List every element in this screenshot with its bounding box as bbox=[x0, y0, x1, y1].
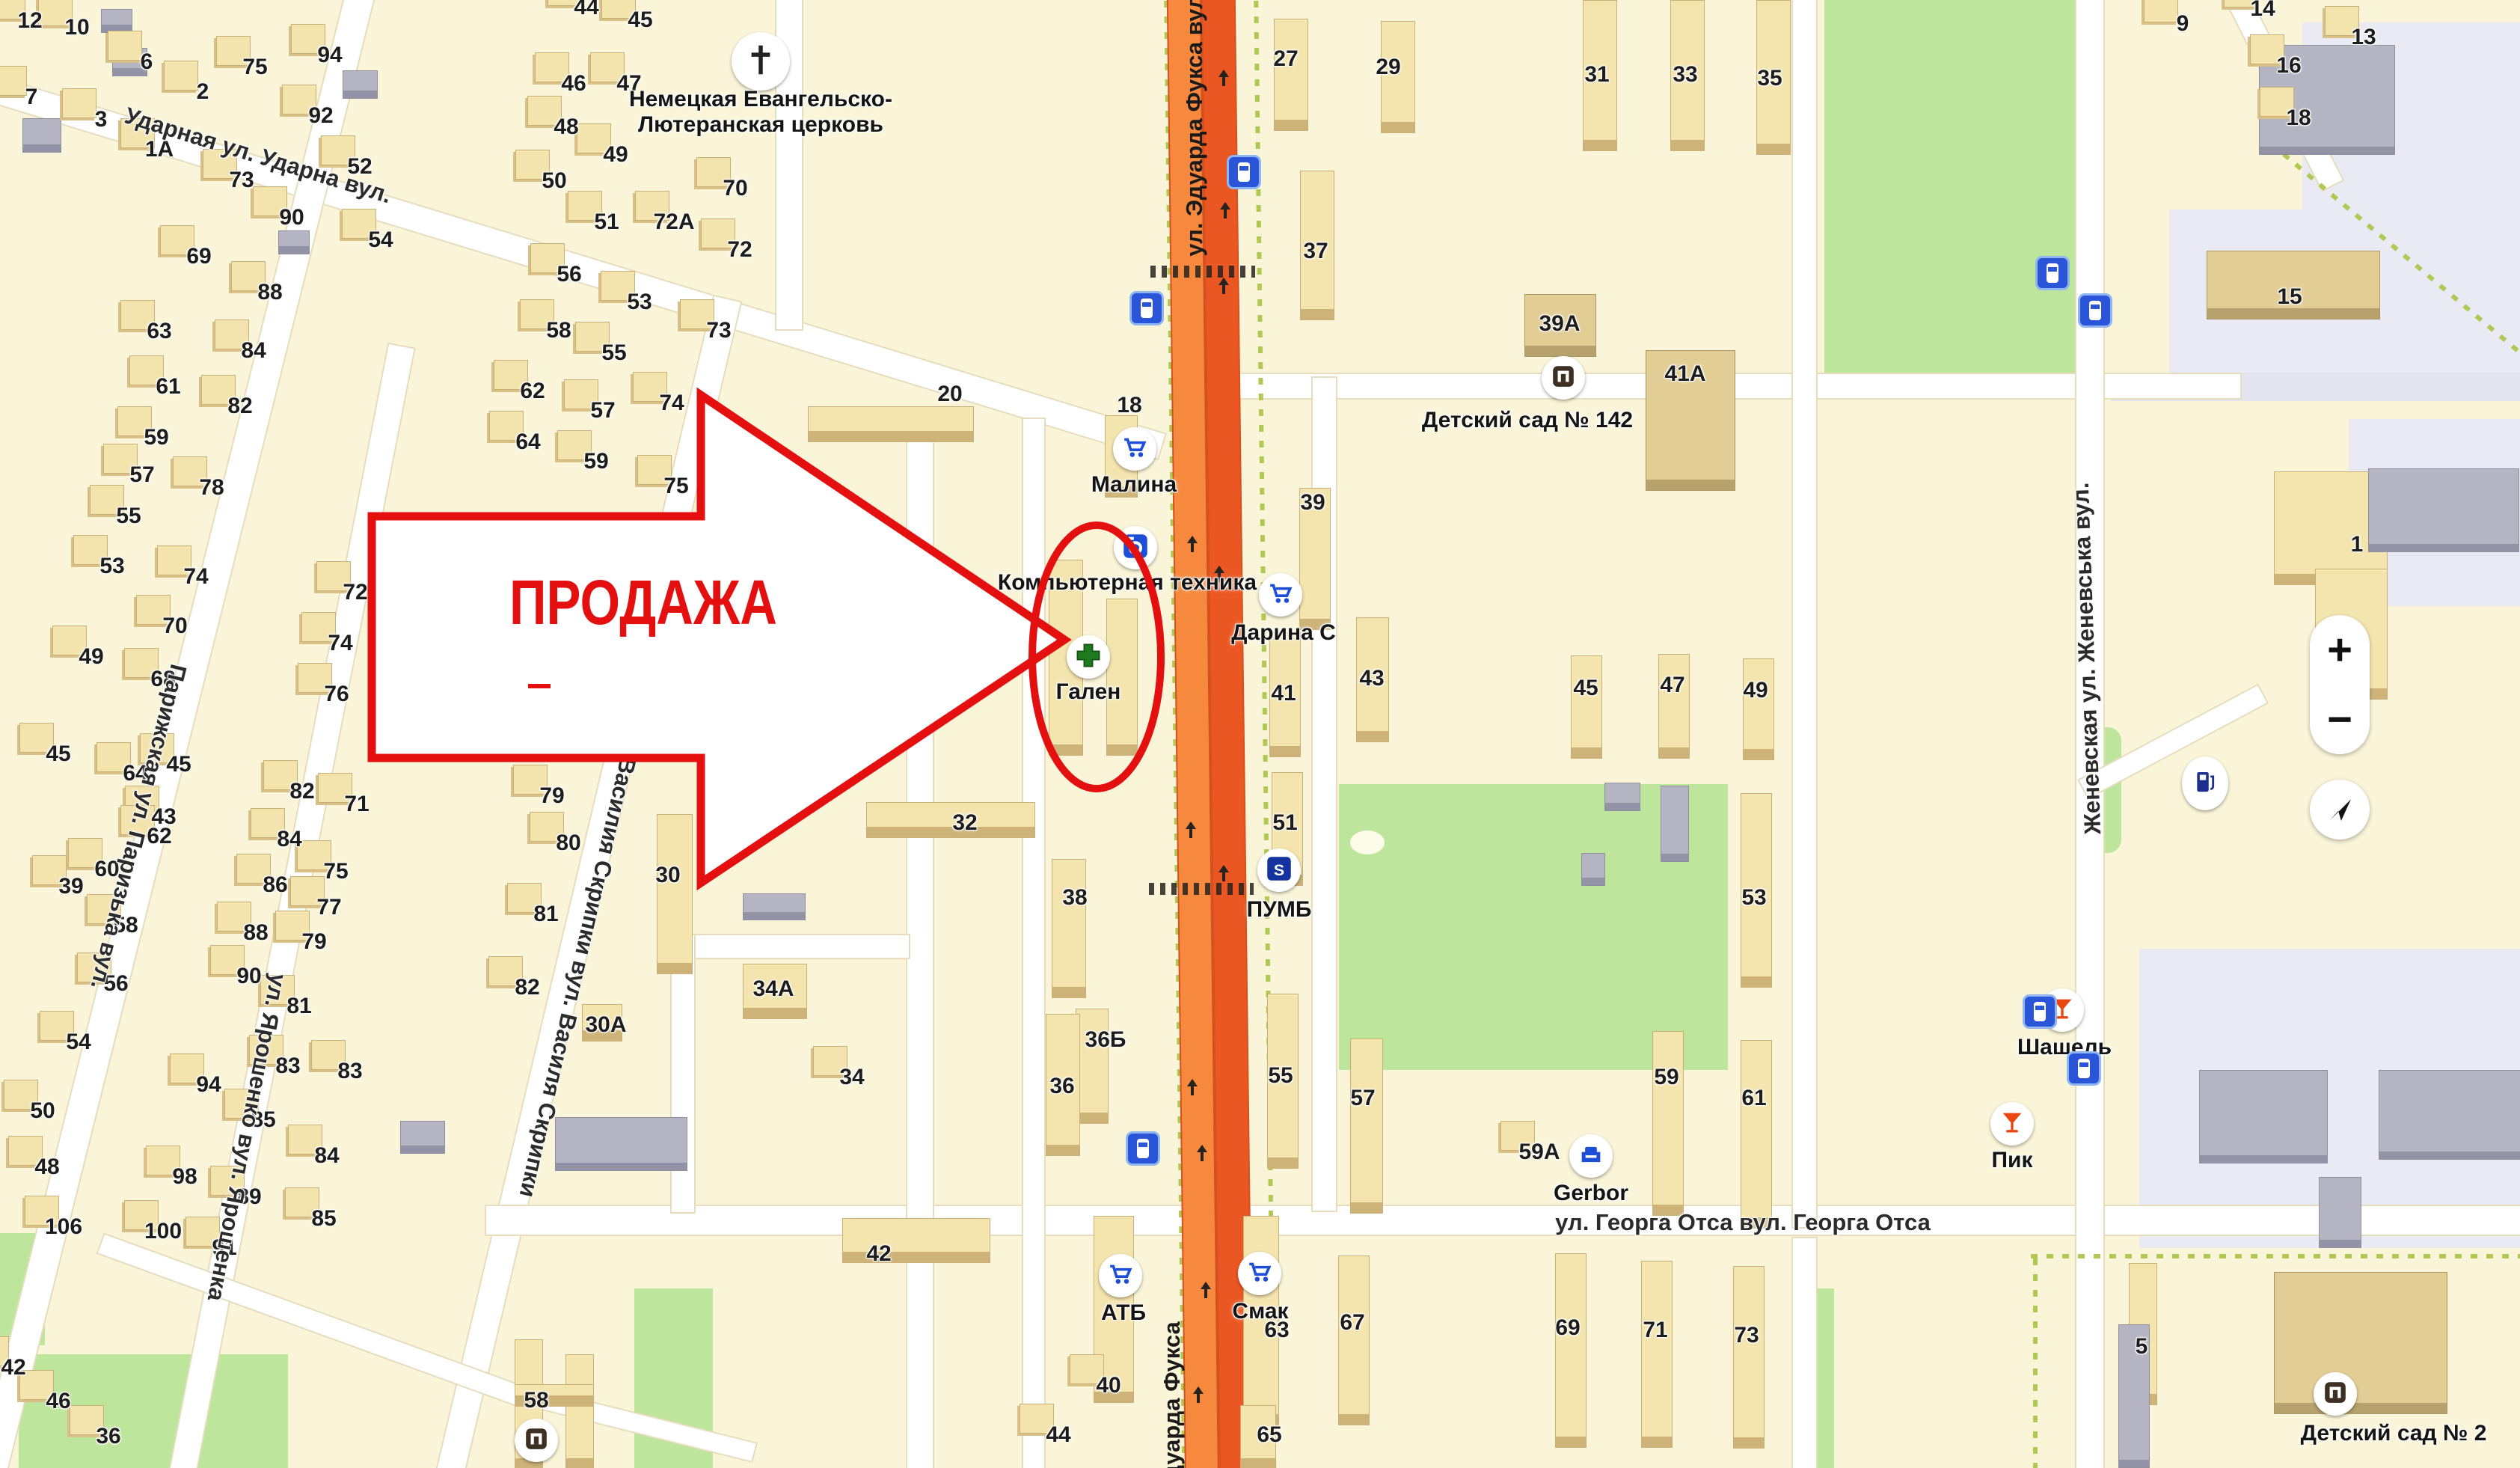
locate-me-button[interactable] bbox=[2310, 780, 2370, 839]
sale-arrow bbox=[0, 0, 2520, 1468]
zoom-out-button[interactable]: − bbox=[2310, 685, 2370, 754]
sale-dash bbox=[528, 684, 551, 688]
zoom-control[interactable]: + − bbox=[2310, 615, 2370, 754]
navigation-arrow-icon bbox=[2325, 795, 2355, 825]
sale-label: ПРОДАЖА bbox=[484, 566, 803, 639]
map-canvas[interactable]: ПРОДАЖА + − 121067231A759492527390546988… bbox=[0, 0, 2520, 1468]
zoom-in-button[interactable]: + bbox=[2310, 615, 2370, 685]
